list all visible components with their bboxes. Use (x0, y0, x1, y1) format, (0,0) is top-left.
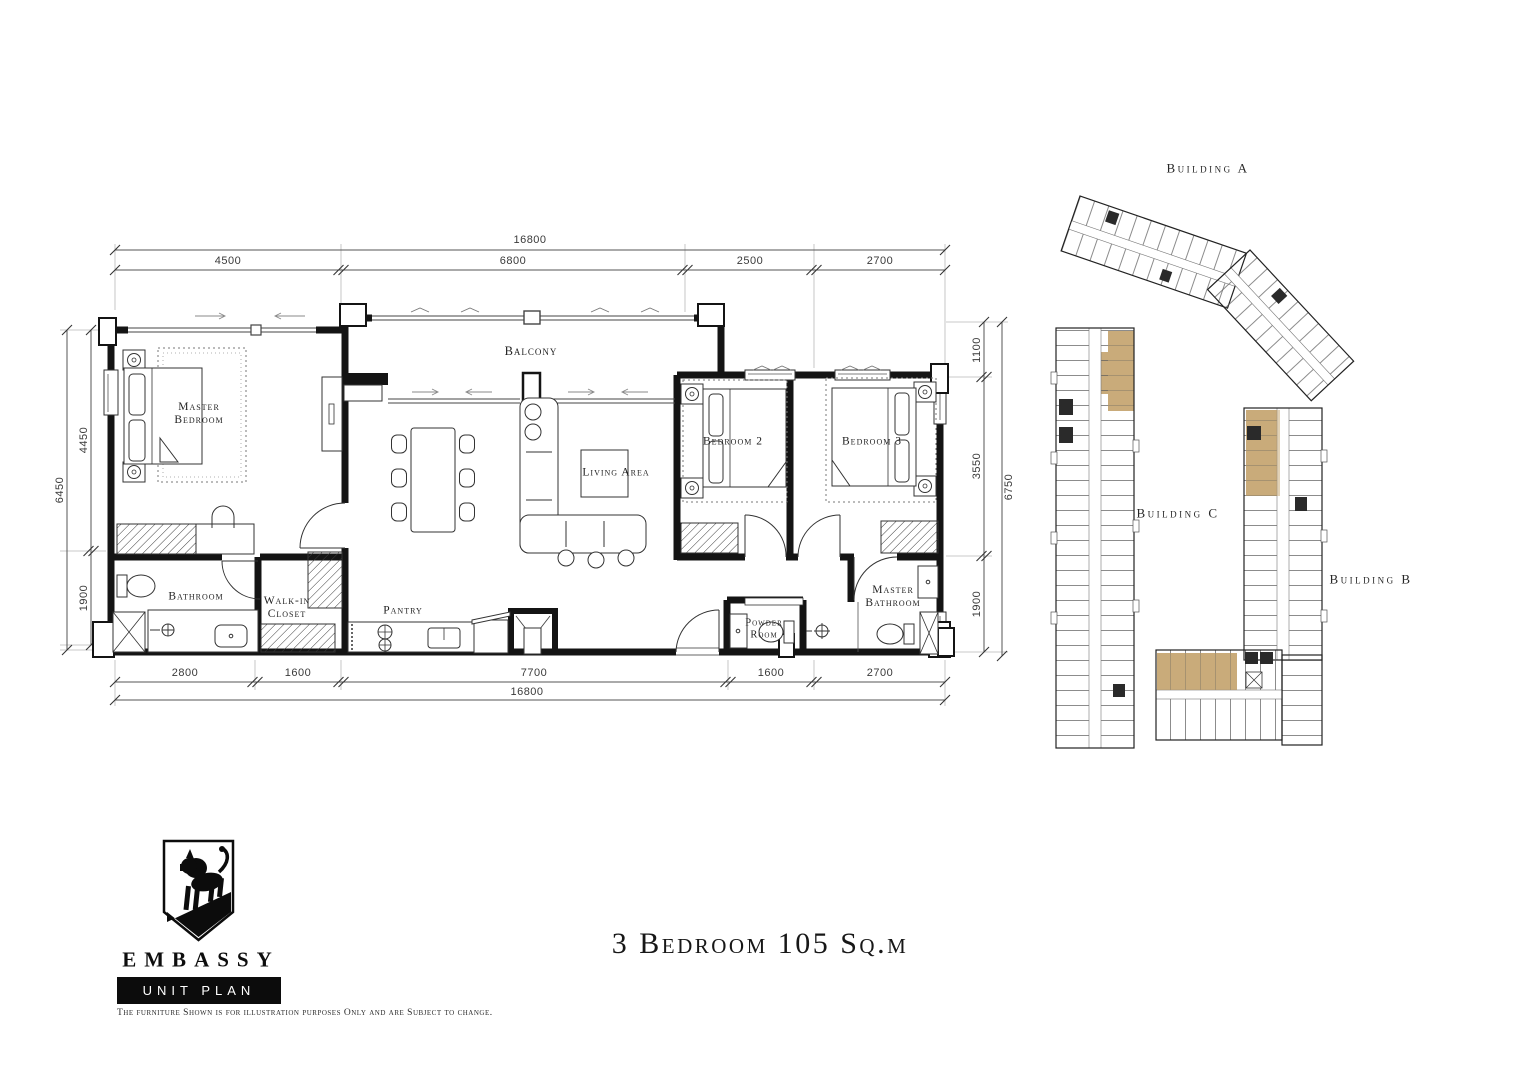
building-label-c: Building C (1136, 507, 1219, 522)
building-label-a: Building A (1166, 162, 1249, 177)
room-label-powder-room: Powder Room (735, 617, 793, 641)
dim-right-total: 6750 (1003, 474, 1015, 500)
dim-right-seg-1: 3550 (971, 453, 983, 479)
room-label-master-bedroom: Master Bedroom (161, 401, 237, 427)
dim-right-seg-0: 1100 (971, 337, 983, 363)
dim-left-seg-0: 4450 (78, 427, 90, 453)
dim-left-seg-1: 1900 (78, 585, 90, 611)
dim-top-seg-2: 2500 (737, 255, 763, 267)
unit-plan-badge-label: UNIT PLAN (143, 983, 256, 998)
dim-bottom-seg-4: 2700 (867, 667, 893, 679)
room-label-bedroom-2: Bedroom 2 (703, 436, 763, 449)
unit-plan-badge: UNIT PLAN (117, 977, 281, 1004)
dim-bottom-total: 16800 (510, 686, 543, 698)
dim-top-total: 16800 (513, 234, 546, 246)
brand-logo (0, 0, 1528, 1080)
dim-top-seg-3: 2700 (867, 255, 893, 267)
dim-top-seg-0: 4500 (215, 255, 241, 267)
room-label-walk-in-closet: Walk-in Closet (255, 595, 319, 621)
lion-crest-icon (164, 841, 233, 940)
dim-bottom-seg-2: 7700 (521, 667, 547, 679)
dim-bottom-seg-3: 1600 (758, 667, 784, 679)
room-label-balcony: Balcony (505, 344, 558, 358)
dim-left-total: 6450 (54, 477, 66, 503)
disclaimer-text: The furniture Shown is for illustration … (117, 1008, 493, 1018)
dim-bottom-seg-1: 1600 (285, 667, 311, 679)
dim-top-seg-1: 6800 (500, 255, 526, 267)
room-label-bathroom: Bathroom (168, 591, 223, 604)
room-label-bedroom-3: Bedroom 3 (842, 436, 902, 449)
dim-right-seg-2: 1900 (971, 591, 983, 617)
room-label-pantry: Pantry (383, 605, 423, 618)
page-title: 3 Bedroom 105 Sq.m (612, 927, 909, 961)
dim-bottom-seg-0: 2800 (172, 667, 198, 679)
building-label-b: Building B (1329, 573, 1412, 588)
unit-plan-page: Master Bedroom Bathroom Walk-in Closet P… (0, 0, 1528, 1080)
brand-name: EMBASSY (122, 948, 280, 973)
room-label-living-area: Living Area (582, 467, 649, 480)
room-label-master-bathroom: Master Bathroom (853, 584, 933, 610)
